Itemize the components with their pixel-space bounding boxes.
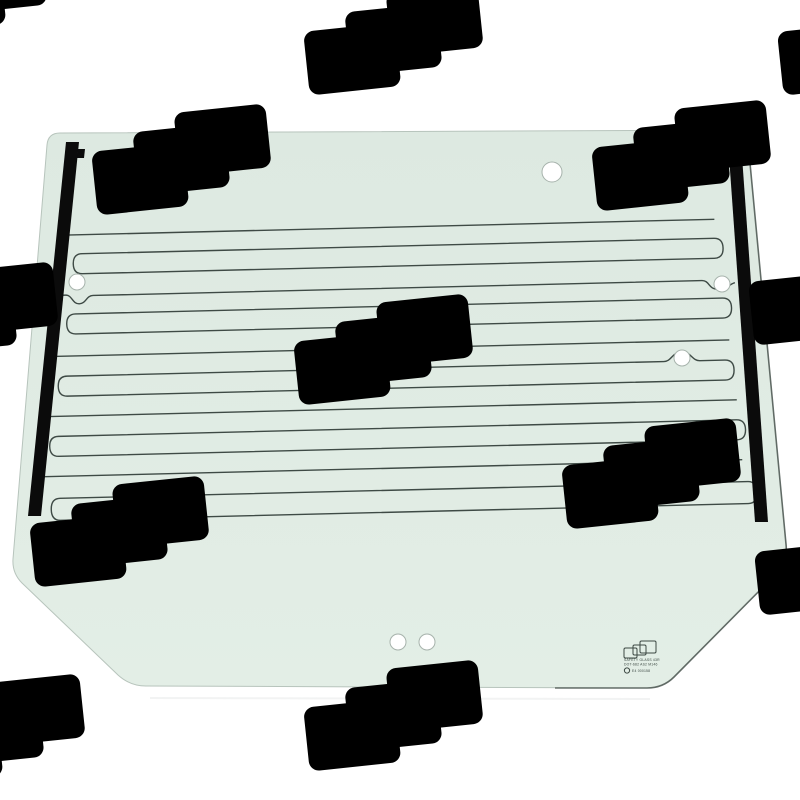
glass-panel-body (13, 130, 786, 688)
hole-bottom-right (419, 634, 435, 650)
hole-left-side (69, 274, 85, 290)
left-moulding-tab (77, 149, 85, 158)
stamp-text-line2: DOT-682 AS2 M146 (624, 663, 658, 667)
watermark-rectangles-icon (777, 22, 800, 95)
hole-top-center (542, 162, 562, 182)
glass-panel-illustration: SAFETY GLASS 43R DOT-682 AS2 M146 E4 000… (0, 0, 800, 800)
watermark-rectangles-icon (0, 673, 89, 785)
watermark-rectangles-icon (754, 542, 800, 615)
watermark-rectangles-icon (0, 0, 92, 33)
product-photo-canvas: SAFETY GLASS 43R DOT-682 AS2 M146 E4 000… (0, 0, 800, 800)
hole-right-side (714, 276, 730, 292)
watermark-rectangles-icon (748, 272, 800, 345)
watermark-rectangles-icon (300, 0, 487, 95)
stamp-text-line3: E4 000158 (632, 669, 650, 673)
hole-bottom-left (390, 634, 406, 650)
stamp-text-line1: SAFETY GLASS 43R (624, 658, 660, 662)
hole-right-middle (674, 350, 690, 366)
